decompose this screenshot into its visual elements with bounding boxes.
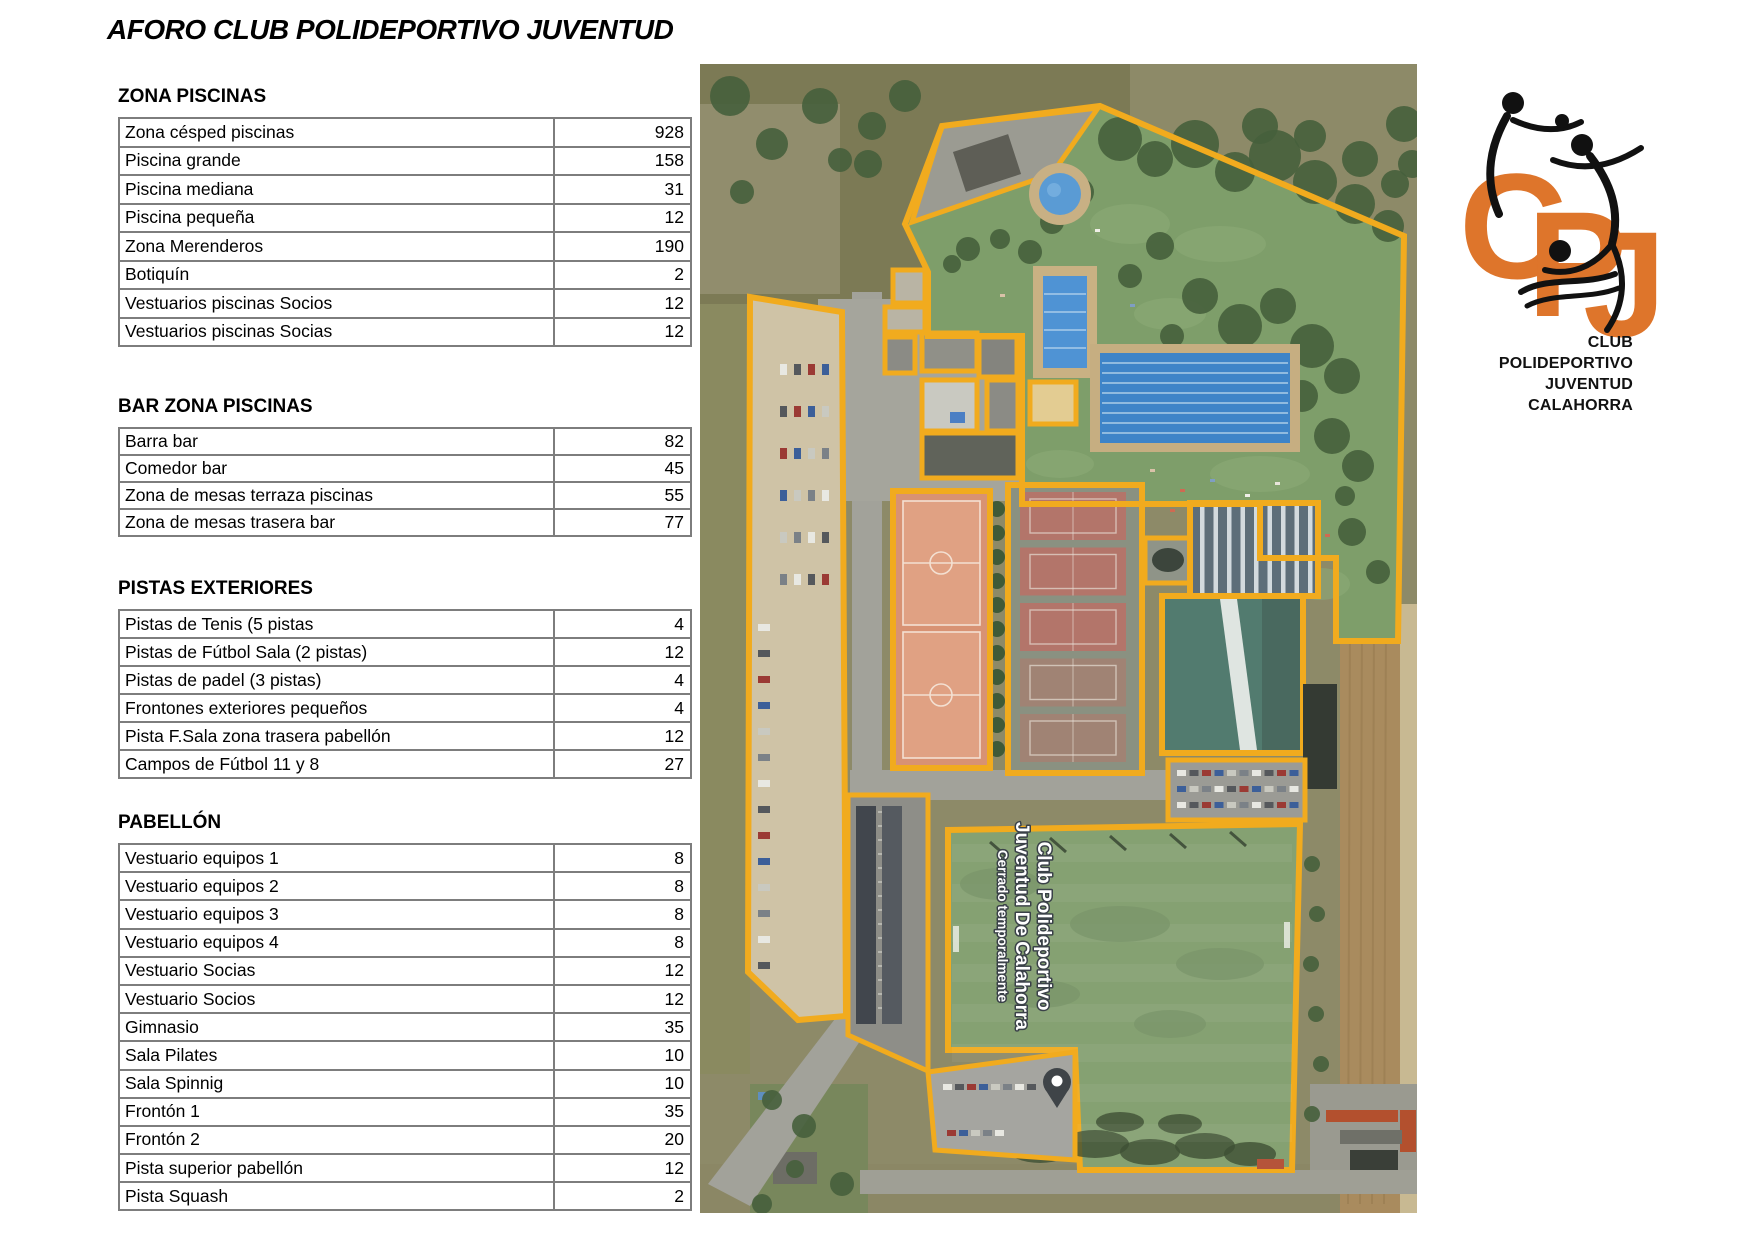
table-row: Sala Pilates10 <box>119 1041 691 1069</box>
table-row: Zona de mesas trasera bar77 <box>119 509 691 536</box>
table-row: Comedor bar45 <box>119 455 691 482</box>
logo-text-line2: JUVENTUD <box>1455 374 1633 395</box>
table-row: Piscina grande158 <box>119 147 691 176</box>
capacity-value: 77 <box>554 509 691 536</box>
capacity-label: Pista Squash <box>119 1182 554 1210</box>
section-heading: ZONA PISCINAS <box>118 86 667 108</box>
table-row: Frontón 135 <box>119 1098 691 1126</box>
section-heading: BAR ZONA PISCINAS <box>118 396 667 418</box>
capacity-value: 8 <box>554 900 691 928</box>
page-title: AFORO CLUB POLIDEPORTIVO JUVENTUD <box>107 14 673 46</box>
capacity-value: 12 <box>554 1154 691 1182</box>
capacity-label: Vestuario equipos 2 <box>119 872 554 900</box>
capacity-value: 10 <box>554 1041 691 1069</box>
table-pabellon: PABELLÓNVestuario equipos 18Vestuario eq… <box>118 812 667 1211</box>
parking-central <box>848 795 928 1071</box>
capacity-label: Vestuario equipos 3 <box>119 900 554 928</box>
capacity-table: Pistas de Tenis (5 pistas4Pistas de Fútb… <box>118 609 692 779</box>
map-label-line3: Cerrado temporalmente <box>995 850 1010 1003</box>
table-row: Barra bar82 <box>119 428 691 455</box>
map-label-line2: Juventud De Calahorra <box>1011 822 1032 1030</box>
capacity-label: Pistas de Tenis (5 pistas <box>119 610 554 638</box>
capacity-label: Pistas de padel (3 pistas) <box>119 666 554 694</box>
table-row: Vestuario equipos 48 <box>119 929 691 957</box>
table-row: Zona Merenderos190 <box>119 232 691 261</box>
capacity-label: Frontón 1 <box>119 1098 554 1126</box>
capacity-label: Zona césped piscinas <box>119 118 554 147</box>
capacity-label: Vestuario equipos 4 <box>119 929 554 957</box>
section-heading: PISTAS EXTERIORES <box>118 578 667 600</box>
capacity-value: 8 <box>554 929 691 957</box>
capacity-label: Barra bar <box>119 428 554 455</box>
table-pistas-exteriores: PISTAS EXTERIORESPistas de Tenis (5 pist… <box>118 578 667 779</box>
capacity-label: Piscina pequeña <box>119 204 554 233</box>
capacity-value: 928 <box>554 118 691 147</box>
table-row: Sala Spinnig10 <box>119 1070 691 1098</box>
capacity-label: Piscina grande <box>119 147 554 176</box>
capacity-value: 55 <box>554 482 691 509</box>
capacity-label: Campos de Fútbol 11 y 8 <box>119 750 554 778</box>
capacity-value: 158 <box>554 147 691 176</box>
page: AFORO CLUB POLIDEPORTIVO JUVENTUD ZONA P… <box>0 0 1754 1240</box>
piscina-grande <box>1090 344 1300 452</box>
table-row: Vestuario Socios12 <box>119 985 691 1013</box>
capacity-value: 12 <box>554 638 691 666</box>
capacity-label: Zona de mesas terraza piscinas <box>119 482 554 509</box>
capacity-label: Zona Merenderos <box>119 232 554 261</box>
capacity-value: 190 <box>554 232 691 261</box>
capacity-value: 2 <box>554 1182 691 1210</box>
capacity-value: 8 <box>554 872 691 900</box>
capacity-value: 4 <box>554 694 691 722</box>
pistas-futbol-sala <box>893 491 990 768</box>
parking-oeste <box>748 297 846 1020</box>
table-row: Pistas de Tenis (5 pistas4 <box>119 610 691 638</box>
capacity-label: Vestuario Socios <box>119 985 554 1013</box>
map-place-label: Club Polideportivo Juventud De Calahorra… <box>995 822 1054 1030</box>
piscina-mediana <box>1033 266 1097 378</box>
pabellon-building <box>1162 596 1303 753</box>
capacity-label: Sala Spinnig <box>119 1070 554 1098</box>
table-row: Frontón 220 <box>119 1126 691 1154</box>
capacity-value: 12 <box>554 289 691 318</box>
table-row: Pista F.Sala zona trasera pabellón12 <box>119 722 691 750</box>
logo-text-line3: CALAHORRA <box>1455 395 1633 416</box>
piscina-pequena <box>1029 163 1091 225</box>
satellite-map-image: Club Polideportivo Juventud De Calahorra… <box>700 64 1417 1213</box>
table-row: Botiquín2 <box>119 261 691 290</box>
capacity-label: Vestuario equipos 1 <box>119 844 554 872</box>
capacity-value: 12 <box>554 318 691 347</box>
table-row: Campos de Fútbol 11 y 827 <box>119 750 691 778</box>
table-row: Piscina mediana31 <box>119 175 691 204</box>
capacity-label: Botiquín <box>119 261 554 290</box>
table-row: Vestuario equipos 28 <box>119 872 691 900</box>
pistas-tenis <box>1008 485 1142 773</box>
table-row: Pistas de Fútbol Sala (2 pistas)12 <box>119 638 691 666</box>
capacity-value: 10 <box>554 1070 691 1098</box>
capacity-value: 2 <box>554 261 691 290</box>
table-bar-zona-piscinas: BAR ZONA PISCINASBarra bar82Comedor bar4… <box>118 396 667 537</box>
parking-entrada <box>928 1052 1075 1160</box>
map-label-line1: Club Polideportivo <box>1033 842 1054 1011</box>
capacity-label: Vestuarios piscinas Socios <box>119 289 554 318</box>
capacity-label: Frontones exteriores pequeños <box>119 694 554 722</box>
table-row: Vestuarios piscinas Socios12 <box>119 289 691 318</box>
table-row: Pistas de padel (3 pistas)4 <box>119 666 691 694</box>
capacity-label: Piscina mediana <box>119 175 554 204</box>
table-row: Gimnasio35 <box>119 1013 691 1041</box>
capacity-label: Gimnasio <box>119 1013 554 1041</box>
capacity-value: 12 <box>554 985 691 1013</box>
table-row: Pista Squash2 <box>119 1182 691 1210</box>
table-row: Pista superior pabellón12 <box>119 1154 691 1182</box>
capacity-label: Zona de mesas trasera bar <box>119 509 554 536</box>
capacity-value: 12 <box>554 957 691 985</box>
parking-pabellon <box>1168 760 1305 820</box>
capacity-value: 35 <box>554 1013 691 1041</box>
table-row: Vestuario Socias12 <box>119 957 691 985</box>
capacity-value: 4 <box>554 610 691 638</box>
capacity-value: 4 <box>554 666 691 694</box>
capacity-label: Pistas de Fútbol Sala (2 pistas) <box>119 638 554 666</box>
capacity-table: Vestuario equipos 18Vestuario equipos 28… <box>118 843 692 1211</box>
table-row: Zona de mesas terraza piscinas55 <box>119 482 691 509</box>
capacity-label: Pista F.Sala zona trasera pabellón <box>119 722 554 750</box>
satellite-map: Club Polideportivo Juventud De Calahorra… <box>700 64 1417 1213</box>
capacity-table: Barra bar82Comedor bar45Zona de mesas te… <box>118 427 692 537</box>
capacity-label: Comedor bar <box>119 455 554 482</box>
table-row: Frontones exteriores pequeños4 <box>119 694 691 722</box>
capacity-label: Sala Pilates <box>119 1041 554 1069</box>
capacity-value: 12 <box>554 722 691 750</box>
capacity-value: 82 <box>554 428 691 455</box>
club-logo: C P J CLUB POLIDEPORTIVO JUVENTUD <box>1455 78 1715 408</box>
logo-text-line1: CLUB POLIDEPORTIVO <box>1455 332 1633 374</box>
section-heading: PABELLÓN <box>118 812 667 834</box>
club-logo-text: CLUB POLIDEPORTIVO JUVENTUD CALAHORRA <box>1455 332 1633 416</box>
capacity-table: Zona césped piscinas928Piscina grande158… <box>118 117 692 347</box>
capacity-value: 27 <box>554 750 691 778</box>
table-row: Zona césped piscinas928 <box>119 118 691 147</box>
table-zona-piscinas: ZONA PISCINASZona césped piscinas928Pisc… <box>118 86 667 347</box>
capacity-value: 20 <box>554 1126 691 1154</box>
table-row: Vestuario equipos 38 <box>119 900 691 928</box>
table-row: Piscina pequeña12 <box>119 204 691 233</box>
capacity-value: 8 <box>554 844 691 872</box>
capacity-label: Frontón 2 <box>119 1126 554 1154</box>
capacity-value: 12 <box>554 204 691 233</box>
table-row: Vestuario equipos 18 <box>119 844 691 872</box>
capacity-label: Vestuario Socias <box>119 957 554 985</box>
pistas-padel-cubiertas <box>1190 503 1318 596</box>
table-row: Vestuarios piscinas Socias12 <box>119 318 691 347</box>
capacity-label: Vestuarios piscinas Socias <box>119 318 554 347</box>
capacity-value: 31 <box>554 175 691 204</box>
capacity-value: 45 <box>554 455 691 482</box>
capacity-label: Pista superior pabellón <box>119 1154 554 1182</box>
capacity-value: 35 <box>554 1098 691 1126</box>
